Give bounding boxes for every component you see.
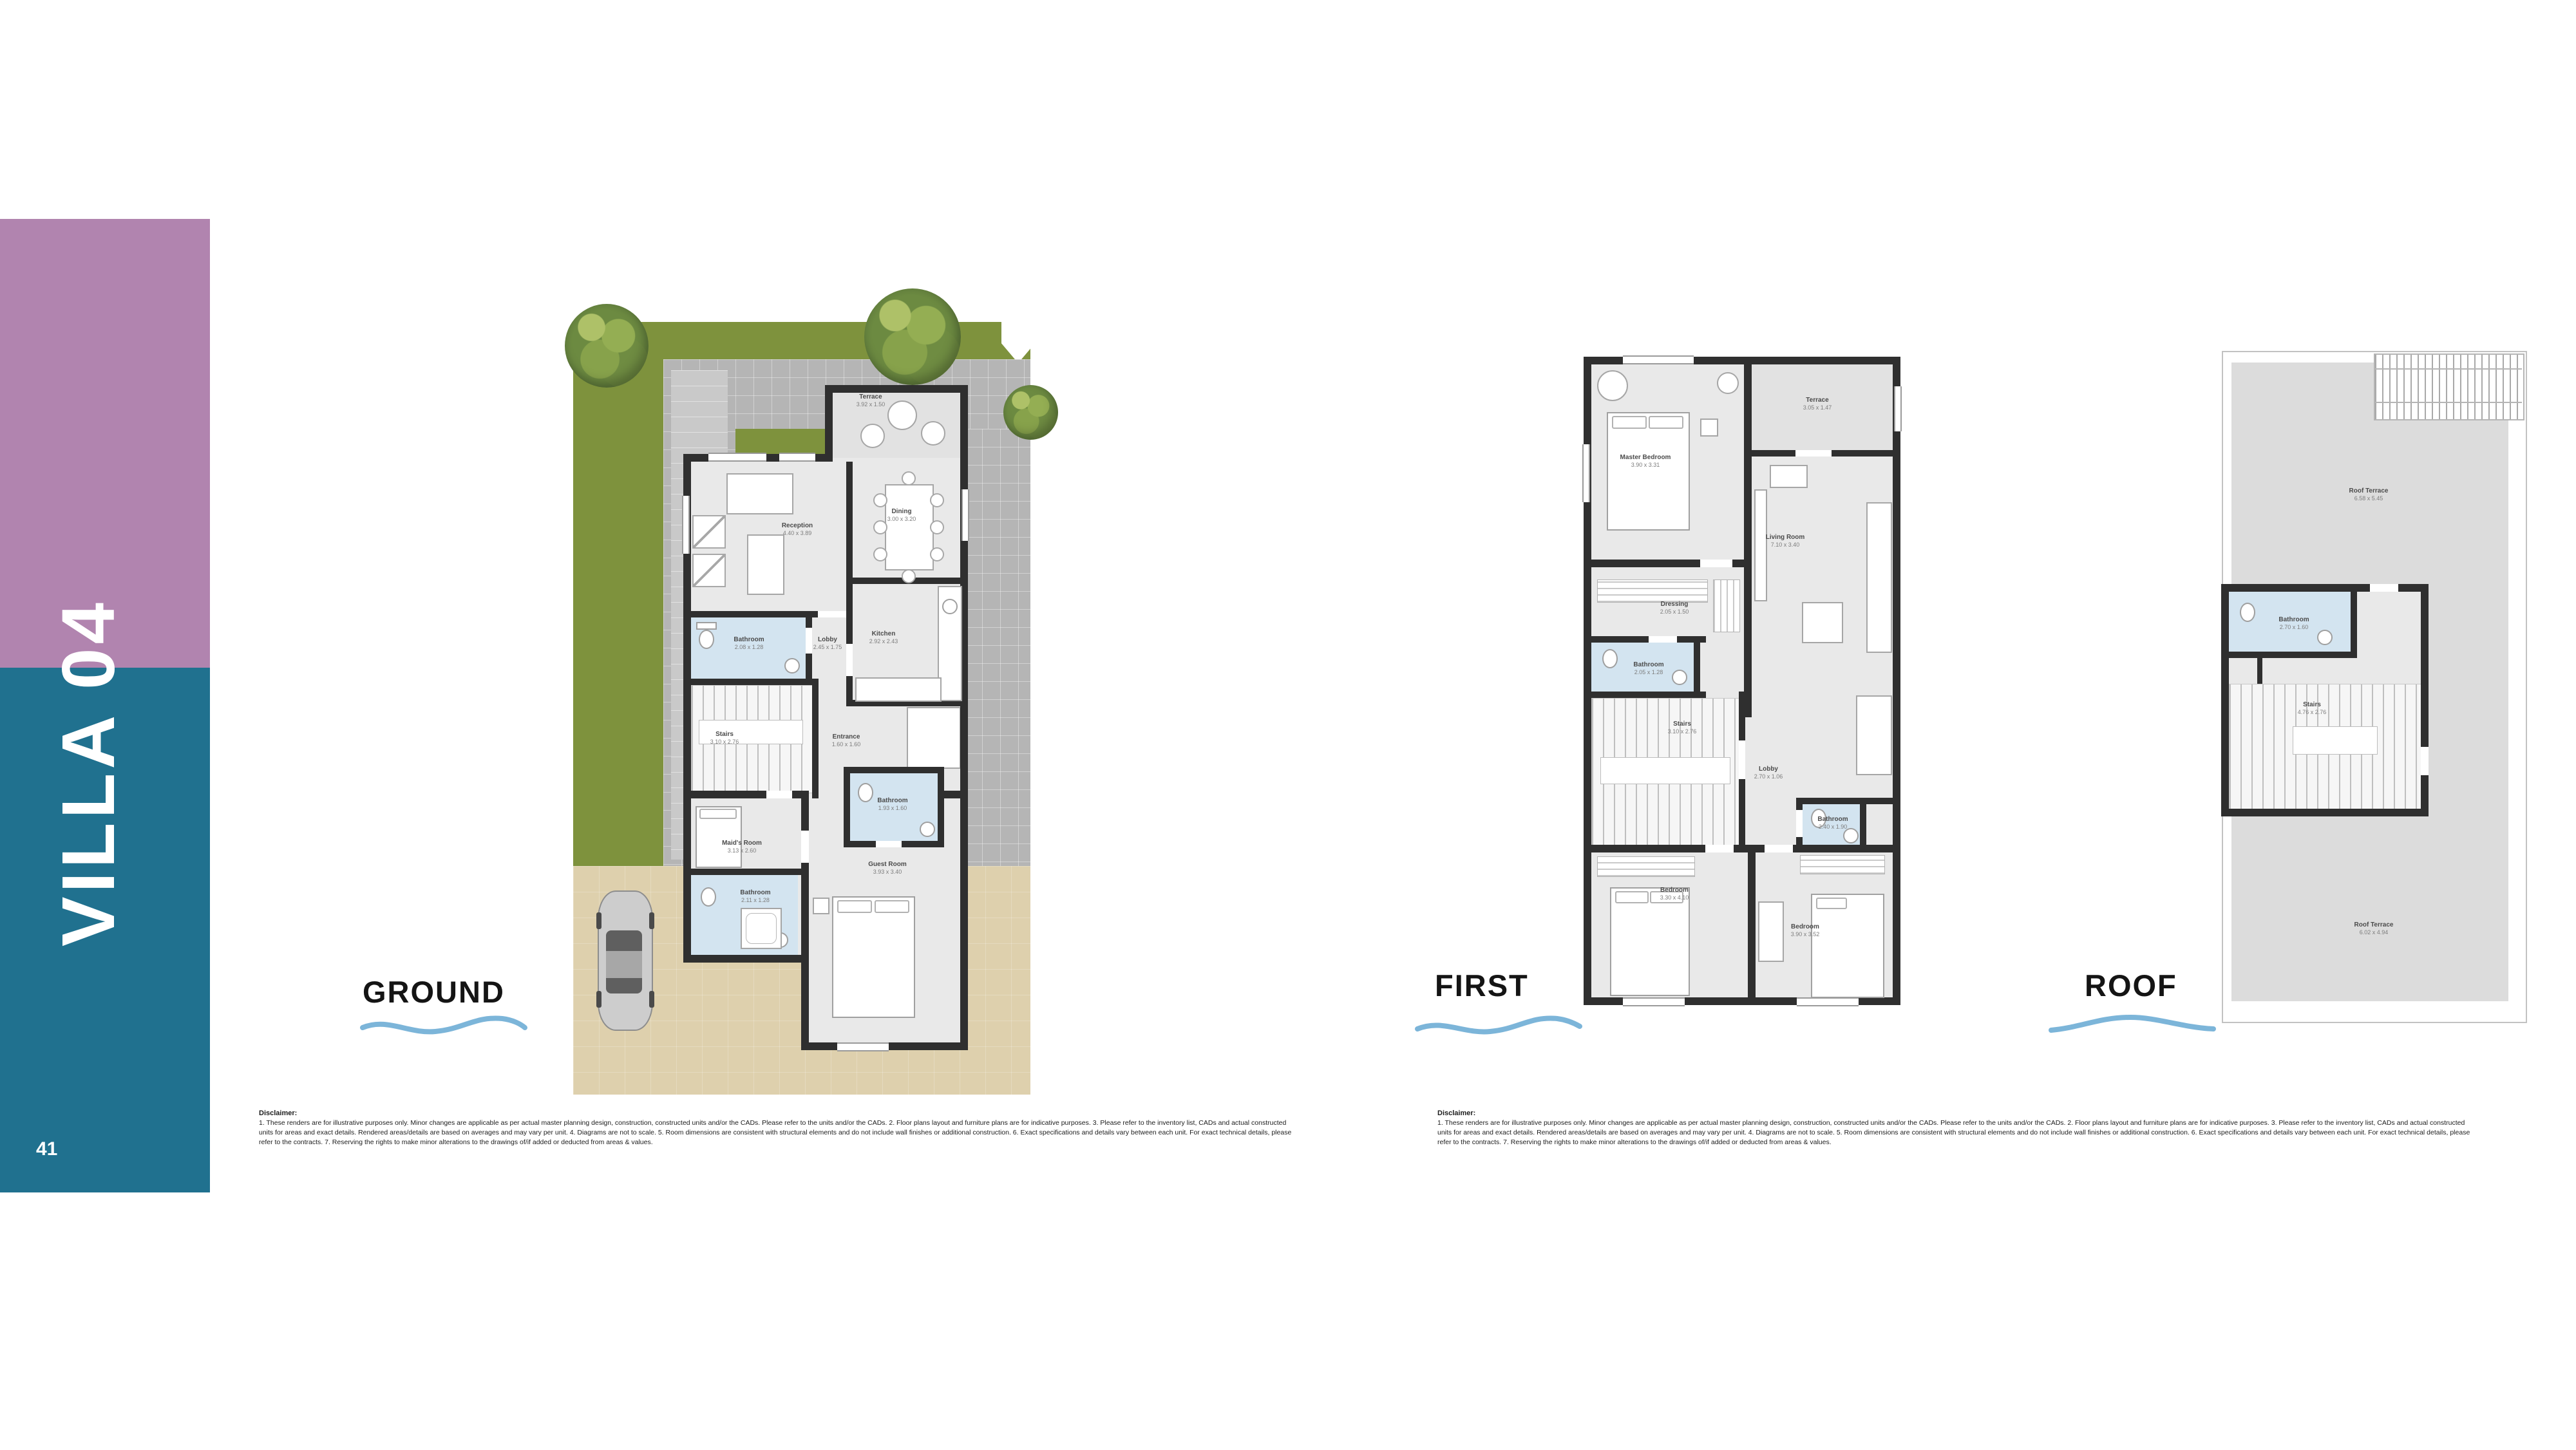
room-label: Entrance1.60 x 1.60	[832, 733, 861, 748]
pillow	[1649, 416, 1683, 429]
dining-table	[885, 484, 934, 570]
window	[1582, 444, 1590, 502]
room-label: Maid's Room3.13 x 2.60	[722, 840, 762, 854]
wall	[1584, 636, 1706, 643]
plan-title-ground: GROUND	[363, 974, 505, 1010]
disclaimer-first: Disclaimer: 1. These renders are for ill…	[1437, 1109, 2477, 1147]
plant-icon	[1717, 372, 1739, 394]
door-opening	[1795, 450, 1832, 457]
room-label: Living Room7.10 x 3.40	[1766, 534, 1805, 548]
entrance-mat	[907, 707, 961, 769]
tree-icon	[1003, 385, 1058, 440]
wall	[2351, 592, 2357, 655]
door-opening	[766, 791, 792, 798]
wall	[846, 462, 853, 578]
window	[961, 489, 969, 541]
terrace-chair	[860, 424, 885, 448]
room-label: Bathroom2.40 x 1.90	[1817, 816, 1848, 830]
lounge-chair	[1597, 370, 1628, 401]
room-label: Guest Room3.93 x 3.40	[868, 861, 906, 875]
room-label: Roof Terrace6.02 x 4.94	[2354, 921, 2394, 936]
room-label: Bathroom2.05 x 1.28	[1633, 661, 1663, 675]
room-label: Stairs3.10 x 2.76	[710, 731, 739, 745]
wall	[1584, 845, 1900, 852]
room-label: Kitchen2.92 x 2.43	[869, 630, 898, 645]
stairs-landing	[1600, 757, 1730, 784]
wall	[2221, 809, 2429, 816]
plan-title-first: FIRST	[1435, 968, 1529, 1003]
window	[1894, 386, 1902, 431]
door-opening	[818, 611, 846, 617]
wall	[1694, 636, 1700, 698]
wall	[2257, 654, 2262, 684]
dining-chair	[873, 547, 887, 561]
terrace-table	[887, 400, 917, 430]
sink-icon	[1672, 670, 1687, 685]
kitchen-counter	[855, 677, 942, 702]
wall	[1584, 692, 1706, 698]
wall	[683, 869, 802, 875]
desk	[1758, 901, 1784, 962]
garden-arch-icon	[1037, 322, 1070, 363]
door-opening	[1796, 810, 1803, 837]
wave-underline	[359, 1011, 528, 1040]
wall	[2421, 584, 2429, 816]
nightstand	[813, 898, 829, 914]
sink-icon	[2317, 630, 2333, 645]
room-label: Terrace3.05 x 1.47	[1803, 397, 1832, 411]
wall	[1744, 450, 1752, 717]
sofa	[726, 473, 793, 514]
room-label: Stairs3.10 x 2.76	[1668, 720, 1697, 735]
wave-underline	[2048, 1010, 2217, 1039]
armchair	[692, 515, 726, 549]
room-label: Bathroom1.93 x 1.60	[877, 797, 907, 811]
door-opening	[1705, 845, 1734, 852]
pillow	[1612, 416, 1647, 429]
wardrobe	[1800, 855, 1885, 874]
tree-icon	[864, 288, 961, 385]
door-opening	[806, 628, 812, 654]
wall	[825, 385, 833, 462]
armchair	[692, 554, 726, 587]
room-label: Bathroom2.08 x 1.28	[734, 636, 764, 650]
wall	[2229, 652, 2357, 658]
disclaimer-heading: Disclaimer:	[259, 1109, 1299, 1117]
room-label: Lobby2.45 x 1.75	[813, 636, 842, 650]
wall	[801, 791, 809, 1050]
toilet-icon	[699, 630, 714, 649]
coffee-table	[1802, 602, 1843, 643]
dining-chair	[930, 493, 944, 507]
coffee-table	[747, 534, 784, 595]
pavement	[964, 429, 1030, 866]
wall	[825, 385, 968, 393]
toilet-icon	[2240, 603, 2255, 622]
toilet-icon	[1602, 649, 1618, 668]
window	[779, 453, 815, 462]
sofa	[1856, 695, 1892, 775]
sink-icon	[784, 658, 800, 673]
dining-chair	[930, 520, 944, 534]
wall	[960, 385, 968, 1050]
toilet-tank	[696, 622, 717, 630]
bed-icon	[1811, 894, 1884, 998]
toilet-icon	[701, 887, 716, 907]
wall	[1860, 798, 1866, 851]
door-opening	[1765, 845, 1793, 852]
door-opening	[876, 841, 902, 847]
car-icon	[598, 890, 653, 1031]
pergola-rail	[2374, 368, 2522, 370]
villa-title: VILLA 04	[45, 544, 131, 946]
door-opening	[846, 644, 853, 676]
room-label: Bathroom2.70 x 1.60	[2278, 616, 2309, 630]
pillow	[837, 900, 872, 913]
disclaimer-body: 1. These renders are for illustrative pu…	[259, 1118, 1299, 1147]
wardrobe	[1597, 856, 1695, 877]
pillow	[699, 809, 737, 819]
room-label: Dining3.00 x 3.20	[887, 508, 916, 522]
wall	[812, 679, 819, 798]
pillow	[875, 900, 909, 913]
wave-underline	[1414, 1010, 1583, 1039]
dining-chair	[902, 471, 916, 485]
wall	[1748, 845, 1756, 1005]
room-label: Dressing2.05 x 1.50	[1660, 601, 1689, 615]
window	[837, 1042, 889, 1051]
disclaimer-body: 1. These renders are for illustrative pu…	[1437, 1118, 2477, 1147]
wardrobe	[1713, 579, 1740, 632]
terrace-chair	[921, 421, 945, 446]
wall	[2221, 584, 2229, 816]
stairs-landing	[2293, 726, 2378, 755]
room-label: Reception4.40 x 3.89	[782, 522, 813, 536]
room-label: Master Bedroom3.90 x 3.31	[1616, 454, 1675, 468]
wall	[1796, 798, 1900, 804]
door-opening	[2421, 747, 2429, 775]
window	[1623, 355, 1694, 364]
door-opening	[801, 831, 809, 863]
brochure-page: VILLA 04 41	[0, 0, 2576, 1450]
toilet-icon	[858, 783, 873, 802]
wall	[683, 955, 809, 963]
page-number: 41	[36, 1138, 57, 1160]
pillow	[1816, 898, 1847, 909]
door-opening	[2370, 584, 2398, 592]
disclaimer-ground: Disclaimer: 1. These renders are for ill…	[259, 1109, 1299, 1147]
wall	[844, 767, 850, 847]
room-label: Lobby2.70 x 1.06	[1754, 766, 1783, 780]
kitchen-sink	[942, 599, 958, 614]
disclaimer-heading: Disclaimer:	[1437, 1109, 2477, 1117]
shower-icon	[741, 908, 782, 949]
window	[1797, 997, 1859, 1006]
wall	[944, 791, 968, 798]
dining-chair	[873, 493, 887, 507]
dining-chair	[873, 520, 887, 534]
bed-icon	[832, 896, 915, 1018]
room-label: Roof Terrace6.58 x 5.45	[2349, 487, 2389, 502]
room-label: Terrace3.92 x 1.50	[857, 393, 885, 408]
window	[682, 496, 690, 554]
room-label: Bedroom3.30 x 4.10	[1660, 887, 1689, 901]
window	[708, 453, 766, 462]
room-label: Stairs4.76 x 2.76	[2298, 701, 2327, 715]
dining-chair	[930, 547, 944, 561]
armchair	[1770, 465, 1808, 488]
wall	[683, 679, 812, 685]
bed-icon	[1610, 887, 1690, 996]
wall	[846, 578, 853, 706]
wardrobe	[1597, 579, 1708, 603]
door-opening	[1649, 636, 1677, 643]
window	[1623, 997, 1685, 1006]
pergola-icon	[2374, 353, 2524, 420]
pillow	[1615, 891, 1649, 903]
sink-icon	[920, 822, 935, 837]
wall	[938, 767, 944, 847]
sink-icon	[1843, 828, 1859, 843]
wall	[844, 767, 944, 773]
dining-chair	[902, 569, 916, 583]
pergola-rail	[2374, 402, 2522, 403]
room-label: Bathroom2.11 x 1.28	[740, 889, 770, 903]
room-label: Bedroom3.90 x 3.52	[1791, 923, 1820, 937]
nightstand	[1700, 419, 1718, 437]
door-opening	[1700, 560, 1732, 567]
bed-icon	[1607, 412, 1690, 531]
sofa	[1866, 502, 1892, 653]
plan-title-roof: ROOF	[2085, 968, 2177, 1003]
door-opening	[1739, 740, 1745, 779]
tree-icon	[565, 304, 649, 388]
